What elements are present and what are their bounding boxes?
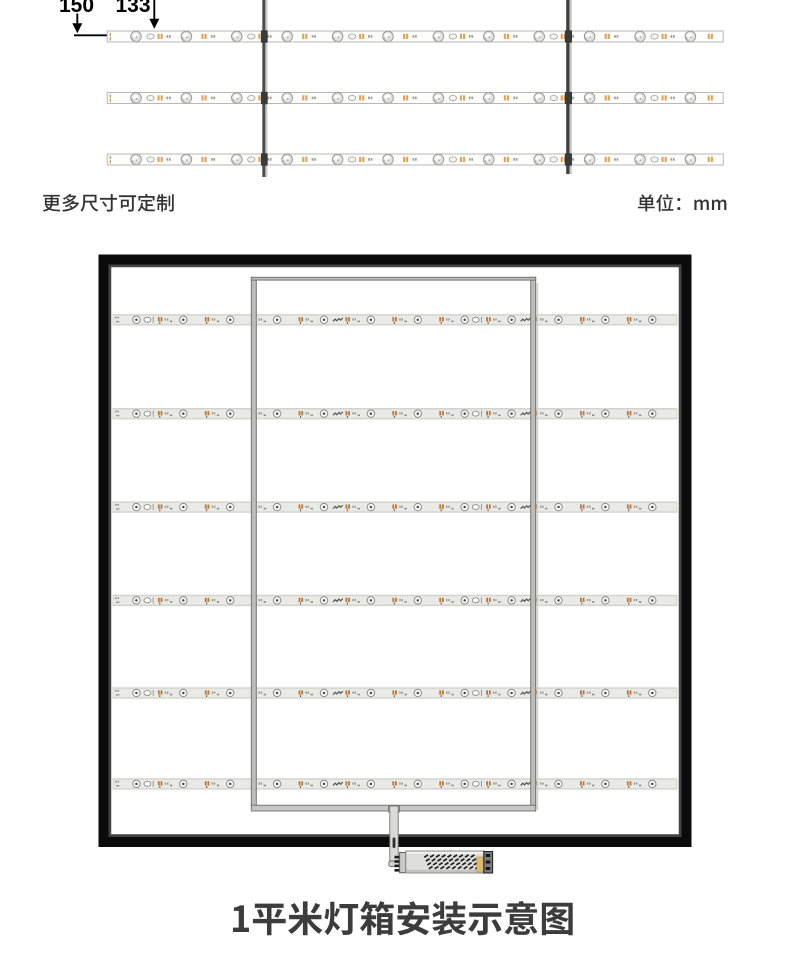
svg-text:133: 133 — [116, 0, 151, 17]
